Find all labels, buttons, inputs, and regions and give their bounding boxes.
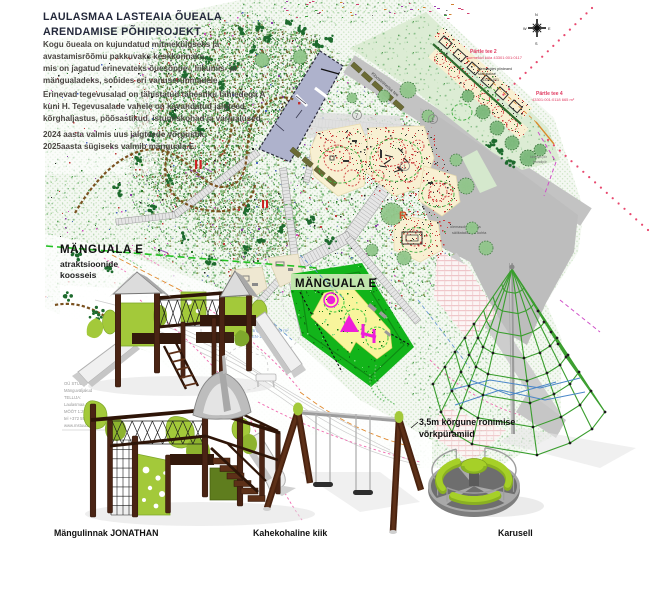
svg-text:MÄNGUALA E: MÄNGUALA E [295,277,377,290]
svg-text:atraktsioonide: atraktsioonide [60,259,118,269]
svg-text:MÄNGUALA E: MÄNGUALA E [60,243,144,256]
svg-text:R: R [399,210,407,222]
svg-text:mängualadeks, sobides eri vanu: mängualadeks, sobides eri vanuserühmadel… [43,76,220,85]
svg-text:2024 aasta valmis uus jalgtee: 2024 aasta valmis uus jalgteede võrgusti… [43,130,206,139]
svg-text:võrkpüramiid: võrkpüramiid [419,429,475,439]
svg-text:Nurmekivi küla 43301:001:0117: Nurmekivi küla 43301:001:0117 [466,55,523,60]
svg-text:Kogu õueala on kujundatud mitm: Kogu õueala on kujundatud mitmekülgseks … [43,40,220,49]
svg-text:LAULASMAA LASTEAIA ÕUEALA: LAULASMAA LASTEAIA ÕUEALA [43,10,222,23]
svg-text:Mänguväljakud: Mänguväljakud [64,388,93,393]
svg-text:2025aasta sügiseks valmib mäng: 2025aasta sügiseks valmib mänguala E. [43,142,196,151]
svg-text:koosseis: koosseis [60,270,97,280]
svg-text:Kahekohaline kiik: Kahekohaline kiik [253,528,327,538]
svg-text:S: S [535,42,538,46]
svg-text:avastamisrõõmu pakkuvaks keskk: avastamisrõõmu pakkuvaks keskkonnaks, [43,52,206,61]
svg-text:W: W [523,27,527,31]
svg-text:säilitatakse: säilitatakse [478,72,496,76]
svg-text:43301:001: 43301:001 [482,78,499,82]
svg-text:Erinevad tegevusalad on tähist: Erinevad tegevusalad on tähistatud tähes… [43,90,265,99]
svg-text:mis on jagatud erinevateks õue: mis on jagatud erinevateks õuesõppe-, li… [43,64,237,73]
svg-text:N: N [535,13,538,17]
svg-text:Mängulinnak JONATHAN: Mängulinnak JONATHAN [54,528,158,538]
svg-text:E: E [548,27,551,31]
svg-text:TELLIJA:: TELLIJA: [64,395,81,400]
svg-text:olemasolev piirdeaed: olemasolev piirdeaed [478,67,512,71]
svg-text:kinnistu piir: kinnistu piir [530,155,548,159]
svg-text:kuni H. Tegevusalade vahele on: kuni H. Tegevusalade vahele on kavandatu… [43,102,247,111]
svg-text:3,5m kõrgune ronimise: 3,5m kõrgune ronimise [419,417,515,427]
svg-text:43301:001:0118 665 m²: 43301:001:0118 665 m² [532,97,575,102]
svg-text:kõrghaljastus, põõsastikud, i: kõrghaljastus, põõsastikud, istumiskohad… [43,114,263,123]
svg-text:Karusell: Karusell [498,528,533,538]
svg-text:krundipiir: krundipiir [533,160,548,164]
svg-text:ARENDAMISE PÕHIPROJEKT: ARENDAMISE PÕHIPROJEKT [43,25,201,38]
